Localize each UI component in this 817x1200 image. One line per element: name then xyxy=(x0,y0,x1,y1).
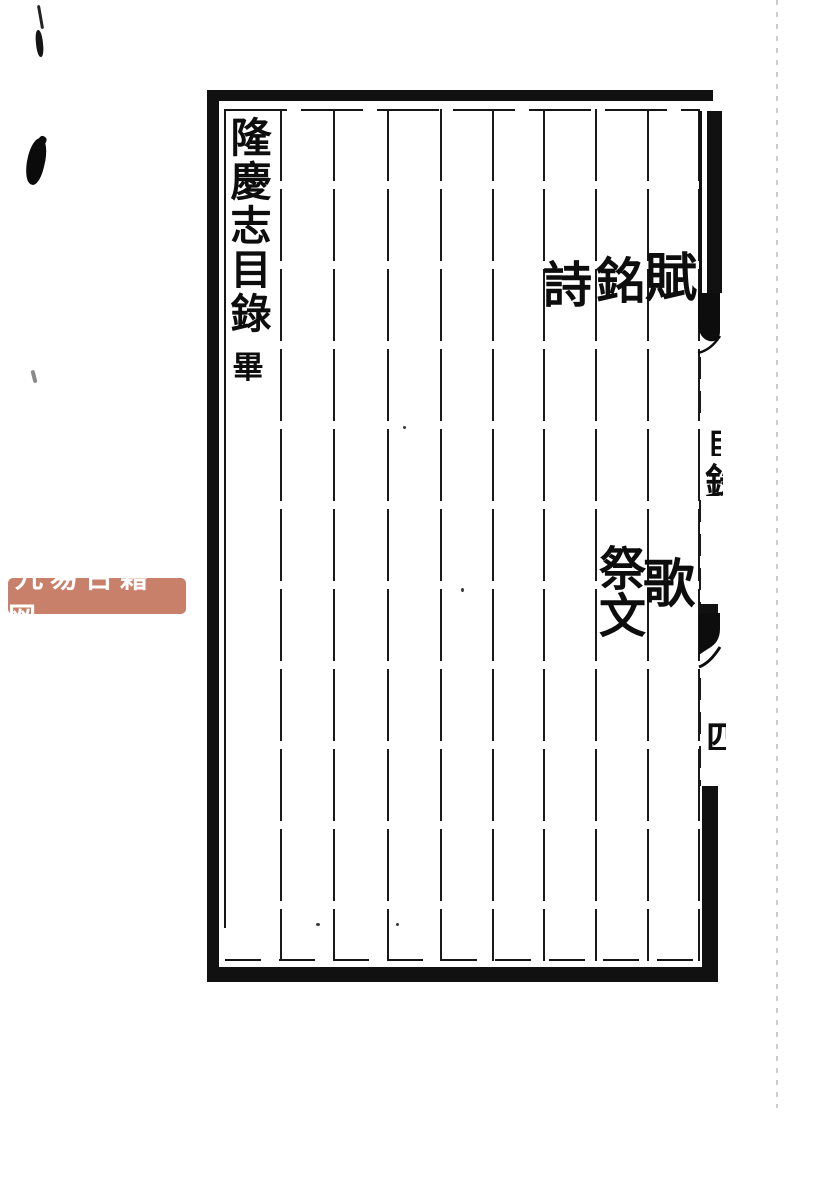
column-rule xyxy=(595,109,597,961)
ink-smudge-streak xyxy=(37,5,44,29)
spine-rule xyxy=(699,500,701,604)
page-title-vertical: 隆慶志目錄 xyxy=(222,116,272,352)
paper-edge-line xyxy=(776,0,778,1108)
frame-inner-rule-top xyxy=(225,109,700,111)
scan-speck xyxy=(461,588,464,592)
column-rule xyxy=(492,109,494,961)
column-rule xyxy=(543,109,545,961)
ink-smudge-blob xyxy=(22,137,51,187)
scan-speck xyxy=(403,426,406,429)
entry-ming: 銘 xyxy=(596,242,645,313)
column-rule xyxy=(440,109,442,961)
column-rule xyxy=(333,109,335,961)
frame-border-bottom xyxy=(207,967,718,982)
scanned-book-page: { "document": { "type": "woodblock-print… xyxy=(0,0,817,1200)
entry-ge: 歌 xyxy=(643,542,695,617)
scan-speck xyxy=(316,923,320,926)
column-rule xyxy=(280,109,282,961)
entry-fu: 賦 xyxy=(645,236,697,311)
entry-shi: 詩 xyxy=(543,246,592,317)
fishtail-mark-bottom xyxy=(697,613,723,675)
spine-rule xyxy=(699,357,701,421)
frame-border-top xyxy=(207,90,713,101)
ink-smudge-streak xyxy=(35,30,45,58)
column-rule xyxy=(387,109,389,961)
watermark: 九易古籍网 xyxy=(8,578,186,614)
spine-partial-glyph-mid: 錄 xyxy=(705,452,723,496)
scan-speck xyxy=(396,923,399,926)
frame-border-left xyxy=(207,90,219,982)
fishtail-cap-bar xyxy=(699,604,718,613)
spine-page-number-partial: 四 xyxy=(706,710,726,750)
spine-black-bar-bottom xyxy=(702,786,718,967)
spine-rule xyxy=(699,678,701,786)
title-end-mark: 畢 xyxy=(231,342,265,387)
spine-partial-glyph-top: 目 xyxy=(707,420,721,456)
ink-smudge-small xyxy=(30,370,37,384)
entry-jiwen: 祭文 xyxy=(592,544,642,646)
fishtail-mark-top xyxy=(697,293,723,357)
frame-inner-rule-bottom xyxy=(225,959,700,961)
spine-black-bar-top xyxy=(699,111,722,293)
